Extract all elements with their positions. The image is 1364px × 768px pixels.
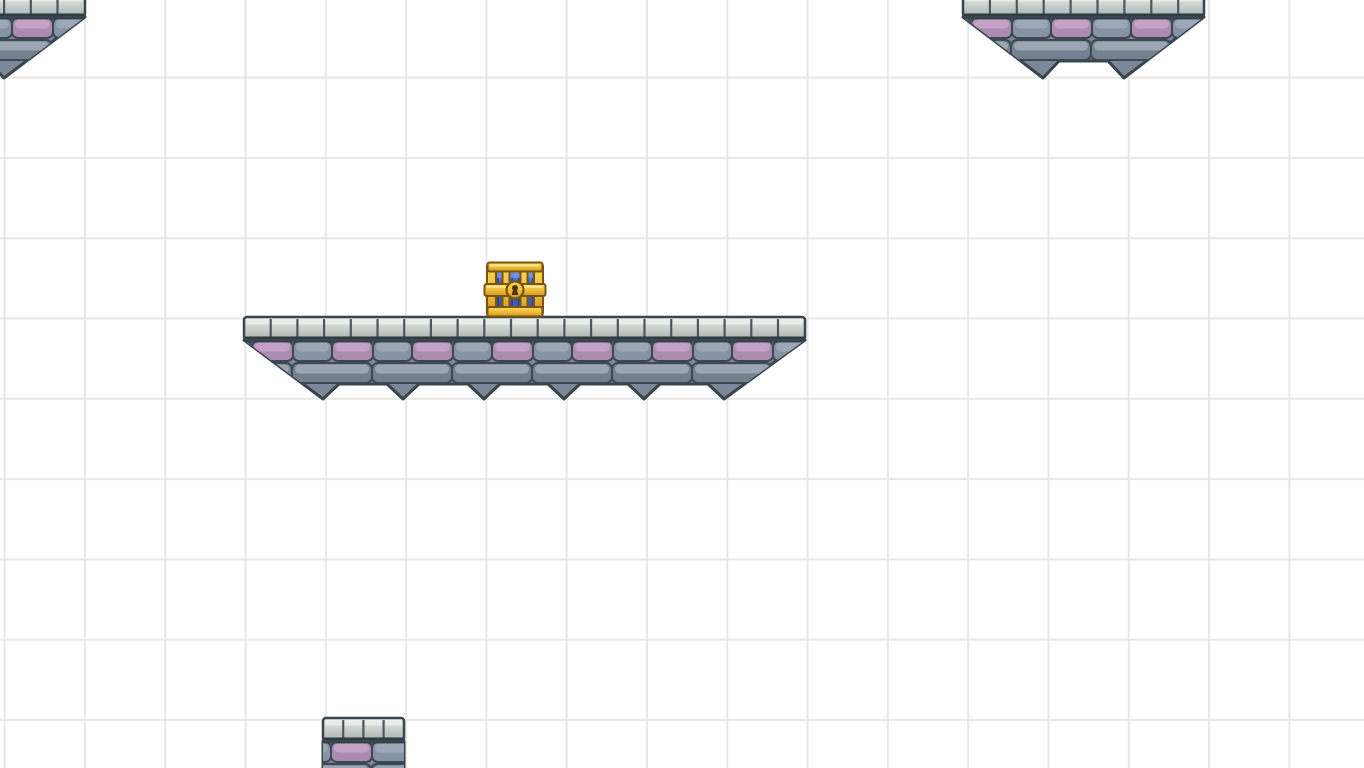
platform-bottom[interactable] xyxy=(315,710,412,768)
platform-top-left[interactable] xyxy=(0,0,93,86)
platform-bridge[interactable] xyxy=(236,309,813,407)
level-canvas[interactable] xyxy=(0,0,1364,768)
level-objects-layer xyxy=(0,0,1364,768)
platform-top-right[interactable] xyxy=(955,0,1212,86)
treasure-chest[interactable] xyxy=(481,256,549,323)
